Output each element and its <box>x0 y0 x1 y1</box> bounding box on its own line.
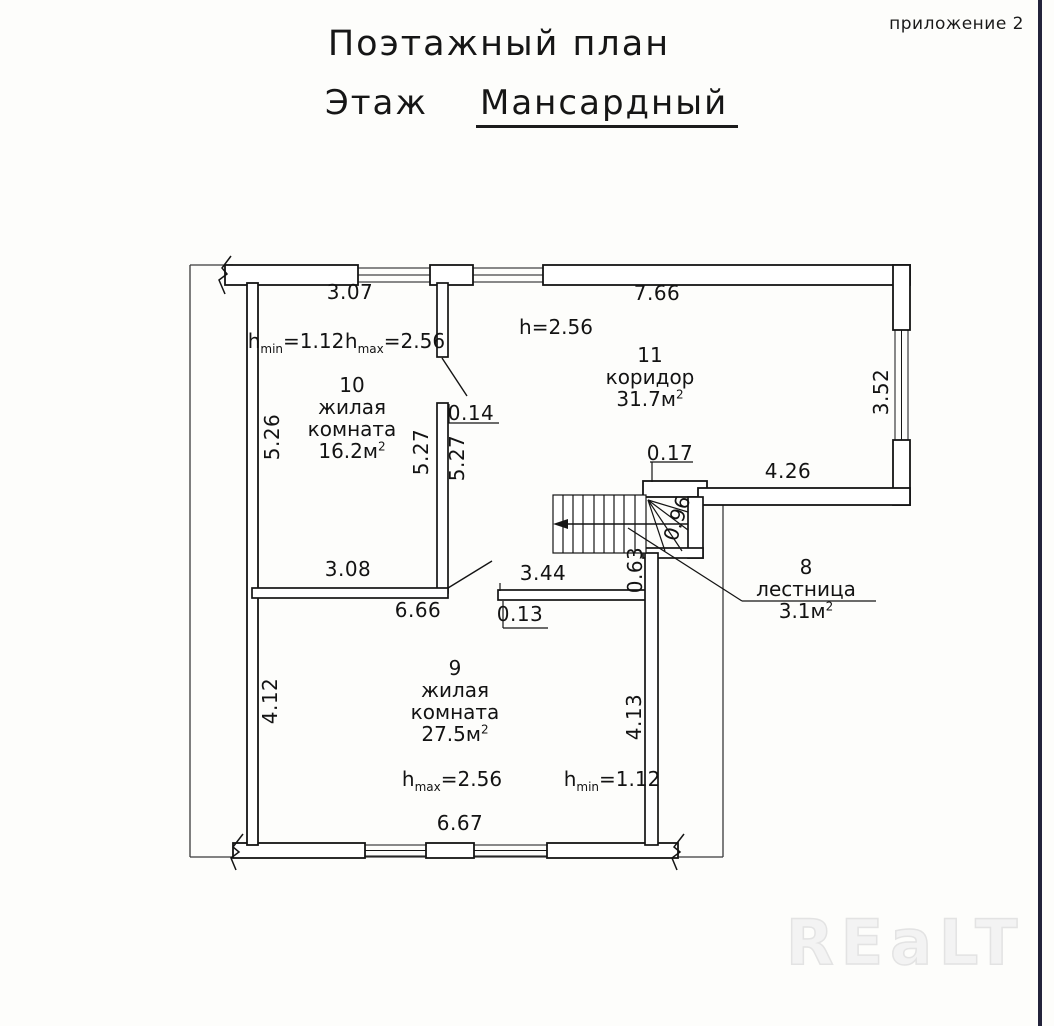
room-area-sup: 2 <box>826 599 834 613</box>
height-value: =1.12 <box>283 329 344 353</box>
dimension-label: 6.66 <box>395 598 442 622</box>
height-symbol: h <box>564 767 577 791</box>
height-subscript: min <box>576 780 599 794</box>
floor-value: Мансардный <box>476 83 738 128</box>
dimension-label: 5.27 <box>445 435 469 482</box>
height-subscript: max <box>415 780 441 794</box>
room-number: 8 <box>756 556 856 578</box>
room-number: 11 <box>606 344 695 366</box>
room-name: жилая <box>411 679 500 701</box>
height-value: =1.12 <box>599 767 660 791</box>
dimension-label: 4.13 <box>622 694 646 741</box>
height-value: =2.56 <box>441 767 502 791</box>
room-name: жилая <box>308 396 397 418</box>
height-symbol: h <box>402 767 415 791</box>
watermark-logo: REaLT <box>786 906 1024 979</box>
annex-note: приложение 2 <box>889 14 1024 34</box>
height-subscript: max <box>358 342 384 356</box>
dimension-label: 0.14 <box>448 401 495 425</box>
room-label: 8лестница3.1м2 <box>756 556 856 622</box>
height-symbol: h <box>519 315 532 339</box>
room-name: комната <box>308 418 397 440</box>
room-area-value: 3.1м <box>779 599 826 623</box>
height-label: hmax=2.56 <box>402 767 502 791</box>
height-label: hmin=1.12 <box>248 329 345 353</box>
dimension-label: 4.12 <box>258 678 282 725</box>
height-symbol: h <box>345 329 358 353</box>
dimension-label: 3.08 <box>325 557 372 581</box>
room-area: 16.2м2 <box>308 440 397 462</box>
dimension-label: 0.17 <box>647 441 694 465</box>
height-value: =2.56 <box>384 329 445 353</box>
room-number: 10 <box>308 374 397 396</box>
room-label: 10жилаякомната16.2м2 <box>308 374 397 462</box>
dimension-label: 3.52 <box>869 369 893 416</box>
room-area-sup: 2 <box>481 722 489 736</box>
dimension-label: 0.63 <box>623 547 647 594</box>
height-label: hmax=2.56 <box>345 329 445 353</box>
height-label: hmin=1.12 <box>564 767 661 791</box>
scan-edge <box>1038 0 1042 1026</box>
room-area: 27.5м2 <box>411 723 500 745</box>
room-name: лестница <box>756 578 856 600</box>
dimension-label: 3.07 <box>327 280 374 304</box>
room-label: 9жилаякомната27.5м2 <box>411 657 500 745</box>
floor-label: Этаж <box>325 83 428 123</box>
dimension-label: 5.26 <box>260 414 284 461</box>
room-area: 3.1м2 <box>756 600 856 622</box>
page-title: Поэтажный план <box>328 24 670 64</box>
dimension-label: 6.67 <box>437 811 484 835</box>
room-name: коридор <box>606 366 695 388</box>
room-area-sup: 2 <box>676 387 684 401</box>
height-symbol: h <box>248 329 261 353</box>
room-area-value: 16.2м <box>318 439 378 463</box>
floor-row: ЭтажМансардный <box>325 83 738 128</box>
height-label: h=2.56 <box>519 315 593 339</box>
room-name: комната <box>411 701 500 723</box>
room-area-value: 31.7м <box>616 387 676 411</box>
dimension-label: 5.27 <box>409 429 433 476</box>
height-value: =2.56 <box>532 315 593 339</box>
room-label: 11коридор31.7м2 <box>606 344 695 410</box>
room-area: 31.7м2 <box>606 388 695 410</box>
room-area-sup: 2 <box>378 439 386 453</box>
floorplan-page: Поэтажный план ЭтажМансардный приложение… <box>0 0 1054 1026</box>
room-number: 9 <box>411 657 500 679</box>
floorplan-linework <box>0 0 1054 1026</box>
dimension-label: 3.44 <box>520 561 567 585</box>
height-subscript: min <box>260 342 283 356</box>
room-area-value: 27.5м <box>421 722 481 746</box>
dimension-label: 7.66 <box>634 281 681 305</box>
dimension-label: 0.13 <box>497 602 544 626</box>
dimension-label: 4.26 <box>765 459 812 483</box>
